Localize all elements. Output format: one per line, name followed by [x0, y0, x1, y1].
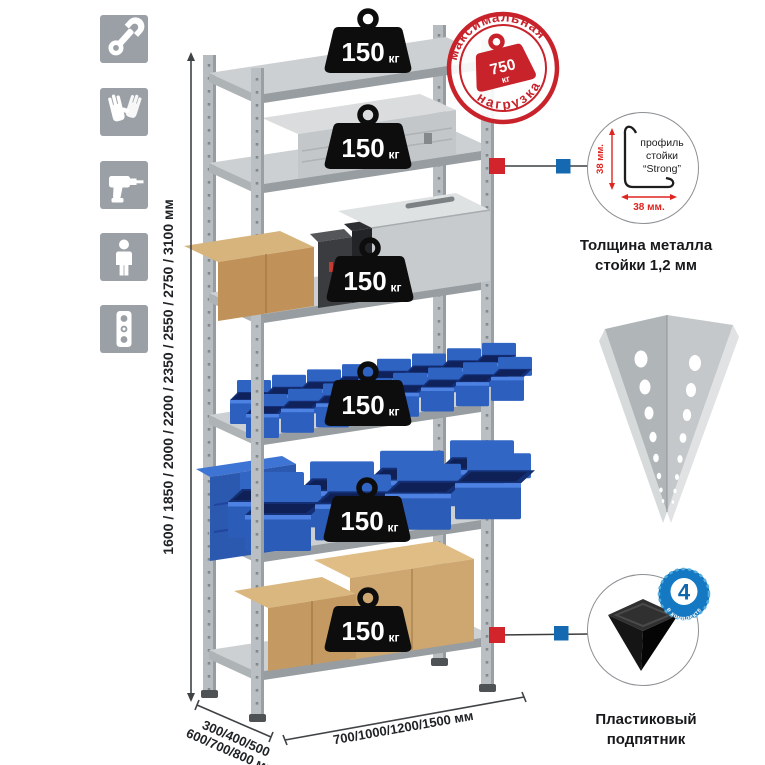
height-dimension: 1600 / 1850 / 2000 / 2200 / 2350 / 2550 …	[160, 52, 195, 702]
profile-dim-vertical: 38 мм.	[595, 144, 606, 174]
feature-tile-assembly	[100, 15, 148, 63]
included-badge: 4 в комплекте	[657, 567, 711, 626]
load-unit: кг	[388, 405, 399, 419]
load-value: 150	[341, 616, 384, 646]
included-count: 4	[678, 580, 691, 605]
wrench-icon	[100, 15, 148, 63]
profile-text-2: стойки	[646, 150, 678, 162]
person-icon	[100, 233, 148, 281]
load-value: 150	[341, 37, 384, 67]
load-value: 150	[341, 133, 384, 163]
load-value: 150	[340, 506, 383, 536]
feature-tile-drill	[100, 161, 148, 209]
gloves-icon	[100, 88, 148, 136]
feature-tile-level	[100, 305, 148, 353]
load-unit: кг	[387, 521, 398, 535]
load-value: 150	[343, 266, 386, 296]
callout-foot	[489, 626, 590, 643]
callout-profile	[489, 158, 590, 174]
load-unit: кг	[388, 52, 399, 66]
profile-caption: Толщина металла стойки 1,2 мм	[572, 236, 720, 276]
product-infographic: 150 кг 150 кг 150 кг 150 кг	[0, 0, 765, 765]
profile-caption-line1: Толщина металла	[572, 236, 720, 256]
drill-icon	[100, 161, 148, 209]
load-unit: кг	[388, 148, 399, 162]
height-dimension-label: 1600 / 1850 / 2000 / 2200 / 2350 / 2550 …	[160, 199, 176, 554]
feature-tile-gloves	[100, 88, 148, 136]
front-left-post	[251, 68, 264, 716]
profile-text-3: “Strong”	[643, 163, 681, 175]
depth-dimension: 300/400/500 600/700/800 мм	[184, 700, 283, 765]
profile-caption-line2: стойки 1,2 мм	[572, 256, 720, 276]
max-load-stamp: максимальная нагрузка 750 кг	[436, 0, 568, 133]
foot-caption-line2: подпятник	[572, 730, 720, 750]
feature-tile-person	[100, 233, 148, 281]
width-dimension: 700/1000/1200/1500 мм	[283, 692, 526, 747]
profile-dim-horizontal: 38 мм.	[633, 202, 665, 213]
foot-caption: Пластиковый подпятник	[572, 710, 720, 750]
load-unit: кг	[390, 281, 401, 295]
load-value: 150	[341, 390, 384, 420]
load-badge: 150 кг	[325, 11, 412, 73]
profile-cross-section: 38 мм. 38 мм. профиль стойки “Strong”	[588, 113, 697, 222]
load-unit: кг	[388, 631, 399, 645]
foot-caption-line1: Пластиковый	[572, 710, 720, 730]
angle-post-image	[597, 299, 747, 534]
profile-text-1: профиль	[640, 137, 684, 149]
profile-detail-circle: 38 мм. 38 мм. профиль стойки “Strong”	[587, 112, 699, 224]
level-icon	[100, 305, 148, 353]
